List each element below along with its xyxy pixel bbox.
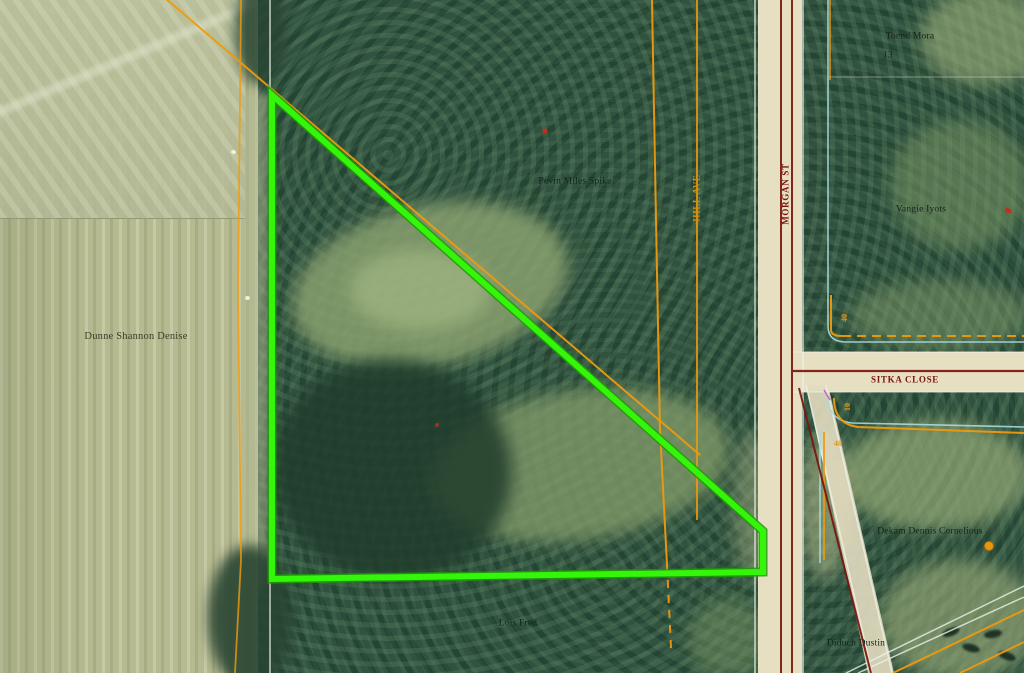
trail-strip (243, 90, 269, 590)
clearing-patch (850, 280, 1024, 350)
clearing-patch (350, 250, 490, 330)
owner-label-vangie: Vangie Iyots (896, 205, 946, 215)
clearing-patch (733, 430, 775, 580)
small-red-marker (435, 423, 439, 427)
hay-bale (231, 150, 236, 154)
orange-dot-marker (984, 541, 994, 551)
clearing-patch (840, 420, 1024, 530)
red-flag-marker: ⚑ (1003, 206, 1013, 219)
clearing-patch (800, 430, 850, 580)
street-label-sitka-close: SITKA CLOSE (871, 376, 939, 385)
survey-number-10: 10 (844, 403, 852, 411)
street-label-morgan-st: MORGAN ST (782, 163, 791, 225)
street-label-hill-ave: HILL AVE (693, 174, 702, 221)
red-dot-marker (543, 129, 548, 134)
owner-label-lois: Lois Fred (499, 619, 537, 629)
owner-label-dekam: Dekam Dennis Cornelious (877, 527, 982, 537)
clearing-patch (688, 598, 768, 673)
owner-label-dunne: Dunne Shannon Denise (84, 332, 187, 343)
hay-bale (245, 296, 250, 300)
clearing-patch (890, 120, 1024, 250)
farm-field-upper (0, 0, 245, 219)
survey-number-ne: 40 (841, 314, 849, 322)
survey-number-40: 40 (834, 440, 842, 448)
owner-label-toend: Toend Mora (886, 32, 935, 42)
owner-label-pevin: Pevin Miles Spike (538, 177, 611, 187)
gis-map-canvas[interactable]: Dunne Shannon Denise Toend Mora 13 Vangi… (0, 0, 1024, 673)
owner-label-diduch: Diduch Dustin (827, 639, 885, 649)
lot-number-13: 13 (883, 51, 893, 61)
